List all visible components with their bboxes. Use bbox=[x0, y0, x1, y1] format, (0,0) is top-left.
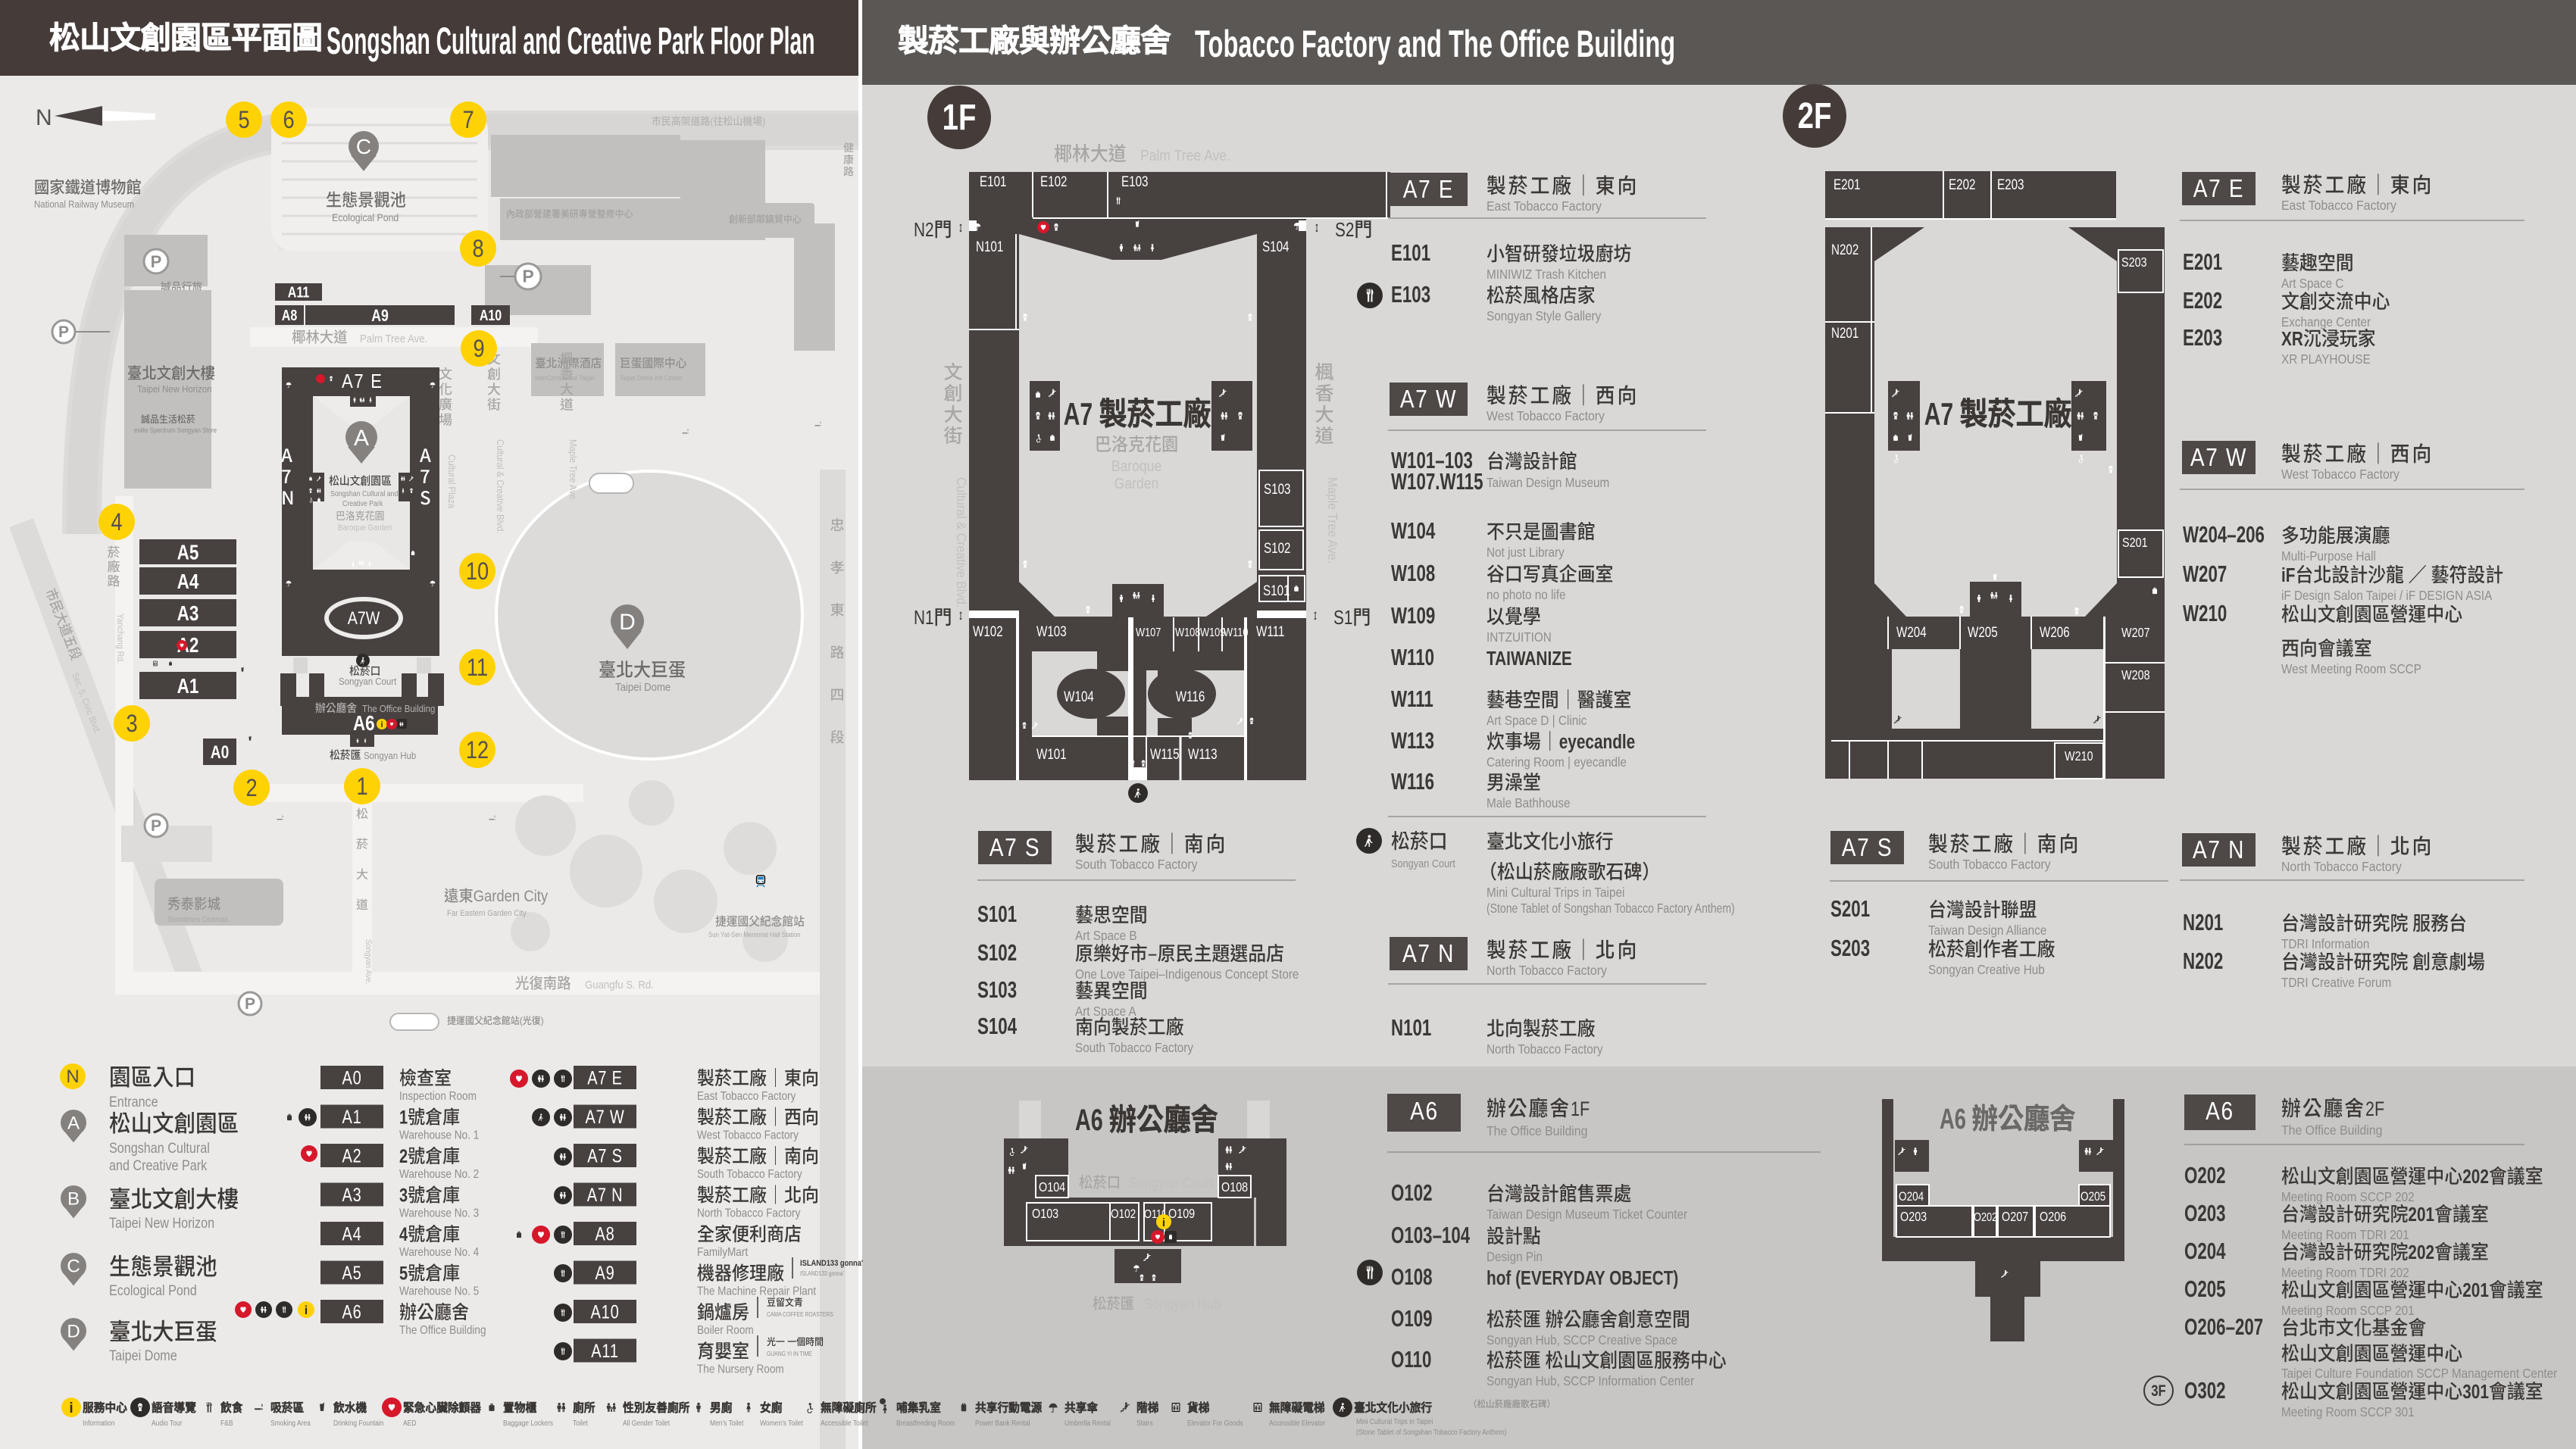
svg-text:Songyan Hub: Songyan Hub bbox=[1144, 1296, 1221, 1312]
svg-text:Creative Park: Creative Park bbox=[342, 498, 383, 507]
svg-text:E203: E203 bbox=[1997, 176, 2024, 192]
svg-text:D: D bbox=[619, 610, 636, 635]
svg-text:A9: A9 bbox=[371, 307, 388, 325]
svg-text:P: P bbox=[151, 817, 161, 835]
svg-text:N202: N202 bbox=[2183, 948, 2223, 973]
svg-text:eslite Spectrum Songyan Store: eslite Spectrum Songyan Store bbox=[134, 426, 217, 435]
svg-text:W108: W108 bbox=[1175, 626, 1200, 640]
svg-text:Taipei Dome Intl Center: Taipei Dome Intl Center bbox=[620, 374, 683, 383]
svg-text:A8: A8 bbox=[595, 1223, 614, 1244]
svg-text:5: 5 bbox=[399, 1263, 408, 1284]
svg-text:Art Space D | Clinic: Art Space D | Clinic bbox=[1487, 713, 1587, 728]
svg-text:i: i bbox=[305, 1304, 308, 1317]
svg-text:S102: S102 bbox=[977, 939, 1017, 965]
svg-text:A7 E: A7 E bbox=[342, 370, 383, 392]
svg-text:W110: W110 bbox=[1391, 644, 1434, 670]
svg-text:A4: A4 bbox=[342, 1223, 361, 1244]
svg-text:XR: XR bbox=[2281, 328, 2303, 350]
svg-text:A7 W: A7 W bbox=[2190, 444, 2247, 472]
svg-text:W102: W102 bbox=[973, 623, 1003, 639]
svg-text:South Tobacco Factory: South Tobacco Factory bbox=[1928, 857, 2051, 872]
svg-text:A5: A5 bbox=[342, 1263, 361, 1284]
svg-text:West Meeting Room SCCP: West Meeting Room SCCP bbox=[2281, 661, 2421, 676]
svg-text:W101: W101 bbox=[1036, 745, 1067, 762]
svg-text:W103: W103 bbox=[1036, 623, 1067, 639]
svg-text:Songyan Ave.: Songyan Ave. bbox=[364, 939, 373, 985]
svg-text:W207: W207 bbox=[2121, 626, 2150, 641]
svg-text:O109: O109 bbox=[1168, 1207, 1195, 1222]
svg-text:S104: S104 bbox=[977, 1013, 1017, 1038]
svg-text:Cultural Plaza: Cultural Plaza bbox=[446, 454, 458, 508]
svg-text:Warehouse No. 2: Warehouse No. 2 bbox=[399, 1168, 479, 1181]
svg-text:Meeting Room SCCP 301: Meeting Room SCCP 301 bbox=[2281, 1404, 2415, 1419]
svg-text:O110: O110 bbox=[1391, 1346, 1431, 1372]
svg-text:C: C bbox=[356, 135, 371, 158]
svg-text:O204: O204 bbox=[2184, 1238, 2226, 1263]
svg-text:W210: W210 bbox=[2183, 600, 2227, 626]
svg-text:12: 12 bbox=[466, 737, 489, 764]
svg-text:Taiwan Design Museum Ticket Co: Taiwan Design Museum Ticket Counter bbox=[1487, 1207, 1687, 1222]
svg-text:Tobacco Factory and The Office: Tobacco Factory and The Office Building bbox=[1195, 23, 1675, 65]
svg-text:O102: O102 bbox=[1111, 1207, 1136, 1222]
svg-text:East Tobacco Factory: East Tobacco Factory bbox=[697, 1090, 796, 1103]
svg-text:W108: W108 bbox=[1391, 560, 1435, 586]
svg-text:South Tobacco Factory: South Tobacco Factory bbox=[697, 1168, 802, 1181]
svg-text:Ecological Pond: Ecological Pond bbox=[332, 211, 399, 223]
svg-text:O104: O104 bbox=[1039, 1180, 1065, 1195]
svg-text:202: 202 bbox=[2462, 1166, 2489, 1188]
svg-text:Art Space B: Art Space B bbox=[1075, 928, 1137, 943]
svg-text:W110: W110 bbox=[1224, 626, 1248, 640]
svg-text:W206: W206 bbox=[2040, 623, 2070, 640]
svg-text:E102: E102 bbox=[1040, 173, 1067, 189]
svg-text:A7 N: A7 N bbox=[587, 1185, 624, 1206]
svg-text:11: 11 bbox=[467, 654, 488, 682]
svg-text:N202: N202 bbox=[1831, 241, 1859, 258]
svg-text:N101: N101 bbox=[1391, 1014, 1431, 1040]
svg-text:A6: A6 bbox=[353, 712, 375, 735]
svg-text:GUANG YI IN TIME: GUANG YI IN TIME bbox=[767, 1350, 812, 1357]
svg-text:A7 N: A7 N bbox=[2193, 836, 2245, 864]
svg-text:The Office Building: The Office Building bbox=[1487, 1123, 1587, 1138]
svg-text:Taipei Dome: Taipei Dome bbox=[109, 1348, 177, 1364]
svg-text:W111: W111 bbox=[1391, 685, 1433, 711]
svg-text:Taipei New Horizon: Taipei New Horizon bbox=[109, 1215, 214, 1232]
svg-text:Garden City: Garden City bbox=[474, 888, 549, 905]
svg-text:National Railway Museum: National Railway Museum bbox=[34, 198, 134, 210]
svg-text:1: 1 bbox=[356, 773, 367, 801]
svg-text:Warehouse No. 5: Warehouse No. 5 bbox=[399, 1285, 479, 1298]
svg-text:hof (EVERYDAY OBJECT): hof (EVERYDAY OBJECT) bbox=[1487, 1267, 1678, 1289]
svg-text:E101: E101 bbox=[980, 173, 1006, 189]
svg-text:Not just Library: Not just Library bbox=[1487, 545, 1565, 560]
svg-text:A8: A8 bbox=[282, 308, 297, 324]
svg-text:Showtimes Cinemas: Showtimes Cinemas bbox=[167, 914, 228, 923]
svg-text:North Tobacco Factory: North Tobacco Factory bbox=[697, 1207, 801, 1220]
svg-text:A10: A10 bbox=[591, 1301, 620, 1323]
svg-text:P: P bbox=[151, 252, 162, 271]
svg-text:A0: A0 bbox=[211, 742, 230, 763]
svg-text:MINIWIZ Trash Kitchen: MINIWIZ Trash Kitchen bbox=[1487, 267, 1606, 282]
svg-text:TDRI Creative Forum: TDRI Creative Forum bbox=[2281, 975, 2391, 990]
svg-text:N101: N101 bbox=[976, 238, 1003, 255]
svg-text:Baroque: Baroque bbox=[1111, 457, 1162, 474]
svg-text:O108: O108 bbox=[1391, 1263, 1433, 1289]
svg-text:O302: O302 bbox=[2184, 1377, 2226, 1403]
svg-text:): ) bbox=[541, 1016, 544, 1027]
svg-text:North Tobacco Factory: North Tobacco Factory bbox=[2281, 859, 2402, 874]
svg-text:7: 7 bbox=[462, 107, 474, 134]
svg-text:A7 E: A7 E bbox=[587, 1067, 623, 1088]
svg-text:W208: W208 bbox=[2121, 668, 2150, 683]
svg-text:All Gender Toilet: All Gender Toilet bbox=[623, 1419, 670, 1427]
svg-text:E201: E201 bbox=[1834, 176, 1860, 192]
svg-text:O202: O202 bbox=[2184, 1162, 2226, 1188]
svg-text:A2: A2 bbox=[342, 1145, 361, 1166]
svg-text:A7 N: A7 N bbox=[1402, 940, 1455, 968]
svg-text:F&B: F&B bbox=[220, 1419, 233, 1427]
svg-text:N: N bbox=[66, 1066, 79, 1087]
svg-text:S203: S203 bbox=[1830, 935, 1870, 960]
svg-text:(Stone Tablet of Songshan Toba: (Stone Tablet of Songshan Tobacco Factor… bbox=[1356, 1428, 1506, 1436]
svg-text:W113: W113 bbox=[1391, 727, 1434, 753]
svg-text:B: B bbox=[67, 1189, 80, 1210]
svg-text:Songyan Court: Songyan Court bbox=[1129, 1175, 1213, 1191]
svg-text:201: 201 bbox=[2408, 1204, 2434, 1226]
svg-text:1: 1 bbox=[399, 1107, 408, 1128]
svg-text:Maple Tree Ave.: Maple Tree Ave. bbox=[1325, 477, 1340, 564]
svg-text:Baroque Garden: Baroque Garden bbox=[338, 524, 392, 533]
svg-text:O103–104: O103–104 bbox=[1391, 1222, 1470, 1248]
svg-text:): ) bbox=[762, 116, 765, 128]
svg-text:A3: A3 bbox=[177, 602, 199, 626]
svg-text:iF: iF bbox=[2281, 564, 2295, 586]
svg-text:C: C bbox=[67, 1257, 80, 1277]
svg-text:1F: 1F bbox=[1571, 1098, 1590, 1121]
svg-text:Warehouse No. 4: Warehouse No. 4 bbox=[399, 1246, 479, 1259]
svg-text:Taipei Dome: Taipei Dome bbox=[615, 680, 671, 693]
svg-text:O203: O203 bbox=[2184, 1200, 2226, 1226]
svg-text:Catering Room | eyecandle: Catering Room | eyecandle bbox=[1487, 754, 1627, 770]
svg-text:A7: A7 bbox=[1924, 396, 1954, 432]
svg-text:301: 301 bbox=[2462, 1381, 2489, 1403]
svg-text:W207: W207 bbox=[2183, 561, 2227, 586]
svg-text:Baggage Lockers: Baggage Lockers bbox=[503, 1419, 553, 1427]
svg-text:Meeting Room TDRI 202: Meeting Room TDRI 202 bbox=[2281, 1265, 2409, 1280]
svg-text:D: D bbox=[67, 1322, 80, 1342]
svg-text:INTZUITION: INTZUITION bbox=[1487, 629, 1552, 645]
svg-text:i: i bbox=[380, 720, 383, 729]
svg-text:Songyan Style Gallery: Songyan Style Gallery bbox=[1487, 308, 1602, 323]
svg-text:2F: 2F bbox=[1798, 96, 1832, 136]
svg-text:8: 8 bbox=[472, 236, 483, 263]
svg-text:3: 3 bbox=[399, 1185, 408, 1206]
svg-text:O203: O203 bbox=[1900, 1210, 1927, 1225]
svg-text:i: i bbox=[69, 1401, 73, 1416]
svg-text:A1: A1 bbox=[177, 675, 199, 698]
svg-text:Songyan Court: Songyan Court bbox=[339, 676, 397, 687]
svg-text:A6: A6 bbox=[342, 1301, 361, 1323]
svg-text:S2: S2 bbox=[1335, 219, 1354, 241]
svg-text:2: 2 bbox=[399, 1146, 408, 1167]
svg-text:S103: S103 bbox=[1264, 480, 1290, 497]
svg-text:A3: A3 bbox=[342, 1185, 361, 1206]
svg-text:FamilyMart: FamilyMart bbox=[697, 1246, 749, 1259]
svg-text:South Tobacco Factory: South Tobacco Factory bbox=[1075, 1040, 1194, 1055]
svg-text:3F: 3F bbox=[2151, 1382, 2166, 1400]
svg-text:A7 S: A7 S bbox=[989, 834, 1041, 862]
svg-text:Cultural & Creative Blvd.: Cultural & Creative Blvd. bbox=[954, 477, 969, 607]
svg-text:O207: O207 bbox=[2002, 1210, 2028, 1225]
svg-text:O204: O204 bbox=[1899, 1190, 1924, 1204]
svg-text:A7 E: A7 E bbox=[1403, 176, 1455, 204]
svg-text:W115: W115 bbox=[1150, 745, 1180, 762]
svg-text:E202: E202 bbox=[2183, 287, 2222, 313]
svg-text:Yanchang Rd.: Yanchang Rd. bbox=[115, 614, 125, 664]
svg-text:E203: E203 bbox=[2183, 324, 2222, 350]
svg-text:O102: O102 bbox=[1391, 1179, 1433, 1205]
svg-text:A7 S: A7 S bbox=[1842, 834, 1893, 862]
svg-text:N201: N201 bbox=[2183, 909, 2223, 935]
svg-text:Maple Tree Ave.: Maple Tree Ave. bbox=[567, 439, 579, 501]
svg-text:Audio Tour: Audio Tour bbox=[152, 1419, 182, 1427]
svg-text:6: 6 bbox=[283, 107, 294, 134]
svg-text:Mini Cultural Trips in Taipei: Mini Cultural Trips in Taipei bbox=[1487, 885, 1624, 900]
svg-text:Taipei Culture Foundation SCCP: Taipei Culture Foundation SCCP Managemen… bbox=[2281, 1366, 2558, 1381]
svg-text:W104: W104 bbox=[1064, 688, 1094, 704]
svg-text:Boiler Room: Boiler Room bbox=[697, 1324, 754, 1337]
svg-text:Songshan Cultural and: Songshan Cultural and bbox=[330, 489, 398, 498]
svg-text:West Tobacco Factory: West Tobacco Factory bbox=[1487, 408, 1605, 423]
svg-text:Elevator For Goods: Elevator For Goods bbox=[1187, 1419, 1243, 1427]
svg-text:A7 S: A7 S bbox=[587, 1145, 623, 1166]
svg-text:Songyan Hub, SCCP Information: Songyan Hub, SCCP Information Center bbox=[1487, 1373, 1695, 1388]
svg-text:Accessible Toilet: Accessible Toilet bbox=[821, 1419, 868, 1427]
svg-text:2F: 2F bbox=[2365, 1098, 2384, 1121]
svg-text:CAMA COFFEE ROASTERS: CAMA COFFEE ROASTERS bbox=[767, 1310, 833, 1318]
svg-text:E103: E103 bbox=[1391, 281, 1430, 307]
svg-text:A7 E: A7 E bbox=[2193, 175, 2245, 203]
svg-text:Songshan Cultural and Creative: Songshan Cultural and Creative Park Floo… bbox=[327, 19, 815, 62]
svg-text:1F: 1F bbox=[943, 98, 977, 138]
svg-text:Garden: Garden bbox=[1114, 475, 1159, 492]
svg-text:A6: A6 bbox=[2206, 1098, 2234, 1126]
svg-text:ISLAND133 gonna': ISLAND133 gonna' bbox=[800, 1269, 844, 1277]
svg-text:(Stone Tablet of Songshan Toba: (Stone Tablet of Songshan Tobacco Factor… bbox=[1487, 901, 1735, 916]
svg-text:no photo no life: no photo no life bbox=[1487, 587, 1566, 602]
svg-text:i: i bbox=[1162, 1216, 1165, 1229]
svg-text:ISLAND133 gonna': ISLAND133 gonna' bbox=[800, 1259, 863, 1268]
svg-text:The Machine Repair Plant: The Machine Repair Plant bbox=[697, 1285, 817, 1298]
svg-text:Warehouse No. 3: Warehouse No. 3 bbox=[399, 1207, 479, 1220]
svg-text:O206: O206 bbox=[2040, 1210, 2066, 1225]
svg-text:Sun Yat-Sen Memorial Hall Stat: Sun Yat-Sen Memorial Hall Station bbox=[708, 931, 801, 939]
svg-text:AED: AED bbox=[403, 1419, 417, 1427]
svg-text:Meeting Room TDRI 201: Meeting Room TDRI 201 bbox=[2281, 1227, 2409, 1242]
svg-text:A7W: A7W bbox=[348, 607, 380, 628]
svg-text:eyecandle: eyecandle bbox=[1559, 731, 1636, 753]
svg-text:Entrance: Entrance bbox=[109, 1094, 158, 1110]
svg-text:W204–206: W204–206 bbox=[2183, 521, 2265, 547]
svg-text:W104: W104 bbox=[1391, 517, 1435, 543]
svg-text:West Tobacco Factory: West Tobacco Factory bbox=[2281, 467, 2399, 482]
svg-text:S103: S103 bbox=[977, 976, 1017, 1002]
svg-text:Multi-Purpose Hall: Multi-Purpose Hall bbox=[2281, 548, 2376, 564]
svg-text:O202: O202 bbox=[1974, 1211, 1997, 1225]
svg-text:N201: N201 bbox=[1831, 324, 1859, 341]
svg-text:A6: A6 bbox=[1075, 1103, 1103, 1137]
svg-text:P: P bbox=[58, 323, 69, 341]
svg-text:S201: S201 bbox=[2122, 536, 2148, 551]
svg-text:Male Bathhouse: Male Bathhouse bbox=[1487, 795, 1570, 810]
svg-text:Stairs: Stairs bbox=[1136, 1419, 1153, 1427]
svg-text:Palm Tree Ave.: Palm Tree Ave. bbox=[360, 332, 427, 345]
svg-text:N: N bbox=[36, 105, 52, 130]
svg-text:Meeting Room SCCP 201: Meeting Room SCCP 201 bbox=[2281, 1303, 2415, 1318]
svg-text:Palm Tree Ave.: Palm Tree Ave. bbox=[1140, 147, 1230, 164]
svg-text:A1: A1 bbox=[342, 1107, 361, 1128]
svg-text:E101: E101 bbox=[1391, 239, 1430, 265]
svg-text:202: 202 bbox=[2408, 1241, 2434, 1263]
svg-text:Men's Toilet: Men's Toilet bbox=[710, 1419, 744, 1427]
svg-text:Far Eastern Garden City: Far Eastern Garden City bbox=[447, 910, 527, 919]
svg-text:A10: A10 bbox=[480, 308, 502, 324]
svg-text:Taiwan Design Alliance: Taiwan Design Alliance bbox=[1928, 923, 2046, 938]
svg-text:XR PLAYHOUSE: XR PLAYHOUSE bbox=[2281, 351, 2371, 367]
svg-text:4: 4 bbox=[399, 1224, 408, 1245]
svg-text:Taipei New Horizon: Taipei New Horizon bbox=[137, 383, 212, 395]
svg-text:A6: A6 bbox=[1410, 1098, 1439, 1126]
svg-text:O205: O205 bbox=[2184, 1276, 2226, 1301]
svg-text:3: 3 bbox=[126, 710, 137, 738]
svg-text:W116: W116 bbox=[1391, 768, 1434, 794]
svg-text:Songyan Hub: Songyan Hub bbox=[364, 750, 416, 761]
svg-text:Meeting Room SCCP 202: Meeting Room SCCP 202 bbox=[2281, 1189, 2415, 1204]
svg-text:N1: N1 bbox=[914, 607, 934, 629]
svg-text:and Creative Park: and Creative Park bbox=[109, 1157, 207, 1174]
svg-text:A11: A11 bbox=[591, 1341, 618, 1362]
svg-text:The Nursery Room: The Nursery Room bbox=[697, 1363, 784, 1376]
svg-text:W109: W109 bbox=[1391, 602, 1435, 628]
svg-text:A7 W: A7 W bbox=[1400, 386, 1457, 414]
svg-text:A: A bbox=[354, 426, 369, 451]
svg-text:iF Design Salon Taipei / iF DE: iF Design Salon Taipei / iF DESIGN ASIA bbox=[2281, 588, 2493, 603]
svg-text:E201: E201 bbox=[2183, 248, 2222, 274]
svg-text:Women's Toilet: Women's Toilet bbox=[760, 1419, 803, 1427]
svg-text:Songshan Cultural: Songshan Cultural bbox=[109, 1140, 210, 1157]
svg-text:The Office Building: The Office Building bbox=[399, 1324, 486, 1337]
svg-text:Accessible Elevator: Accessible Elevator bbox=[1269, 1419, 1325, 1427]
svg-text:A0: A0 bbox=[342, 1067, 361, 1088]
svg-text:Ecological Pond: Ecological Pond bbox=[109, 1282, 197, 1299]
svg-text:Taiwan Design Museum: Taiwan Design Museum bbox=[1487, 475, 1609, 490]
svg-text:Design Pin: Design Pin bbox=[1487, 1249, 1543, 1264]
svg-text:S101: S101 bbox=[1263, 582, 1290, 598]
svg-text:South Tobacco Factory: South Tobacco Factory bbox=[1075, 857, 1198, 872]
svg-text:(: ( bbox=[710, 116, 714, 128]
svg-text:W116: W116 bbox=[1176, 688, 1205, 704]
svg-text:5: 5 bbox=[238, 107, 249, 134]
svg-text:East Tobacco Factory: East Tobacco Factory bbox=[2281, 198, 2396, 213]
svg-text:A9: A9 bbox=[595, 1263, 614, 1284]
svg-text:O206–207: O206–207 bbox=[2184, 1313, 2263, 1339]
svg-text:Drinking Fountain: Drinking Fountain bbox=[333, 1419, 384, 1427]
svg-text:W111: W111 bbox=[1256, 623, 1284, 639]
svg-text:S102: S102 bbox=[1264, 539, 1290, 556]
svg-text:Power Bank Rental: Power Bank Rental bbox=[975, 1419, 1030, 1427]
svg-text:A5: A5 bbox=[177, 541, 199, 564]
svg-text:Toilet: Toilet bbox=[573, 1419, 588, 1427]
svg-text:W113: W113 bbox=[1188, 745, 1218, 762]
svg-text:Art Space A: Art Space A bbox=[1075, 1004, 1137, 1019]
svg-text:North Tobacco Factory: North Tobacco Factory bbox=[1487, 1041, 1603, 1057]
svg-text:W210: W210 bbox=[2065, 749, 2093, 764]
svg-text:Inspection Room: Inspection Room bbox=[399, 1090, 477, 1103]
svg-text:S203: S203 bbox=[2121, 255, 2147, 270]
svg-text:TDRI Information: TDRI Information bbox=[2281, 936, 2369, 951]
svg-text:2: 2 bbox=[245, 775, 257, 802]
svg-text:S104: S104 bbox=[1262, 238, 1290, 255]
svg-text:Songyan Creative Hub: Songyan Creative Hub bbox=[1928, 962, 2045, 977]
svg-text:TAIWANIZE: TAIWANIZE bbox=[1487, 648, 1572, 670]
svg-text:S101: S101 bbox=[977, 901, 1017, 926]
svg-text:Art Space C: Art Space C bbox=[2281, 276, 2343, 291]
svg-text:E202: E202 bbox=[1949, 176, 1975, 192]
svg-text:9: 9 bbox=[473, 336, 484, 363]
svg-text:Smoking Area: Smoking Area bbox=[270, 1419, 311, 1427]
svg-text:201: 201 bbox=[2462, 1279, 2489, 1301]
svg-text:W107.W115: W107.W115 bbox=[1391, 468, 1483, 494]
svg-text:O109: O109 bbox=[1391, 1305, 1433, 1331]
svg-text:Mini Cultural Trips in Taipei: Mini Cultural Trips in Taipei bbox=[1356, 1417, 1433, 1426]
svg-text:One Love Taipei–Indigenous Con: One Love Taipei–Indigenous Concept Store bbox=[1075, 967, 1299, 982]
svg-text:O103: O103 bbox=[1032, 1207, 1058, 1222]
svg-text:Information: Information bbox=[83, 1419, 114, 1427]
svg-text:A4: A4 bbox=[177, 570, 199, 594]
svg-text:The Office Building: The Office Building bbox=[2281, 1123, 2382, 1138]
svg-text:10: 10 bbox=[466, 558, 489, 586]
svg-text:Warehouse No. 1: Warehouse No. 1 bbox=[399, 1129, 479, 1142]
svg-text:W107: W107 bbox=[1136, 626, 1161, 640]
svg-text:A: A bbox=[67, 1113, 80, 1134]
svg-text:Songyan Court: Songyan Court bbox=[1391, 857, 1455, 870]
svg-text:East Tobacco Factory: East Tobacco Factory bbox=[1487, 198, 1602, 214]
svg-text:Guangfu S. Rd.: Guangfu S. Rd. bbox=[585, 978, 654, 991]
svg-text:Breastfeeding Room: Breastfeeding Room bbox=[896, 1419, 955, 1427]
svg-text:A7 W: A7 W bbox=[585, 1107, 624, 1128]
svg-text:N2: N2 bbox=[914, 219, 934, 241]
svg-text:S1: S1 bbox=[1333, 607, 1352, 629]
svg-text:West Tobacco Factory: West Tobacco Factory bbox=[697, 1129, 799, 1142]
svg-text:E103: E103 bbox=[1121, 173, 1148, 189]
svg-text:Cultural & Creative Blvd.: Cultural & Creative Blvd. bbox=[495, 439, 506, 534]
svg-text:A6: A6 bbox=[1940, 1104, 1966, 1135]
svg-text:Umbrella Rental: Umbrella Rental bbox=[1064, 1419, 1111, 1427]
svg-text:O205: O205 bbox=[2080, 1190, 2106, 1204]
svg-text:A11: A11 bbox=[288, 284, 309, 301]
svg-text:A7: A7 bbox=[1064, 396, 1093, 432]
svg-text:4: 4 bbox=[111, 509, 122, 536]
svg-text:North Tobacco Factory: North Tobacco Factory bbox=[1487, 963, 1607, 978]
svg-text:Songyan Hub, SCCP Creative Spa: Songyan Hub, SCCP Creative Space bbox=[1487, 1332, 1677, 1348]
svg-text:W205: W205 bbox=[1968, 623, 1998, 640]
svg-text:W204: W204 bbox=[1896, 623, 1927, 640]
svg-text:P: P bbox=[245, 995, 255, 1013]
svg-text:O108: O108 bbox=[1221, 1180, 1248, 1195]
svg-text:W109: W109 bbox=[1200, 626, 1225, 640]
svg-text:S201: S201 bbox=[1830, 895, 1870, 921]
svg-text:P: P bbox=[522, 267, 533, 286]
